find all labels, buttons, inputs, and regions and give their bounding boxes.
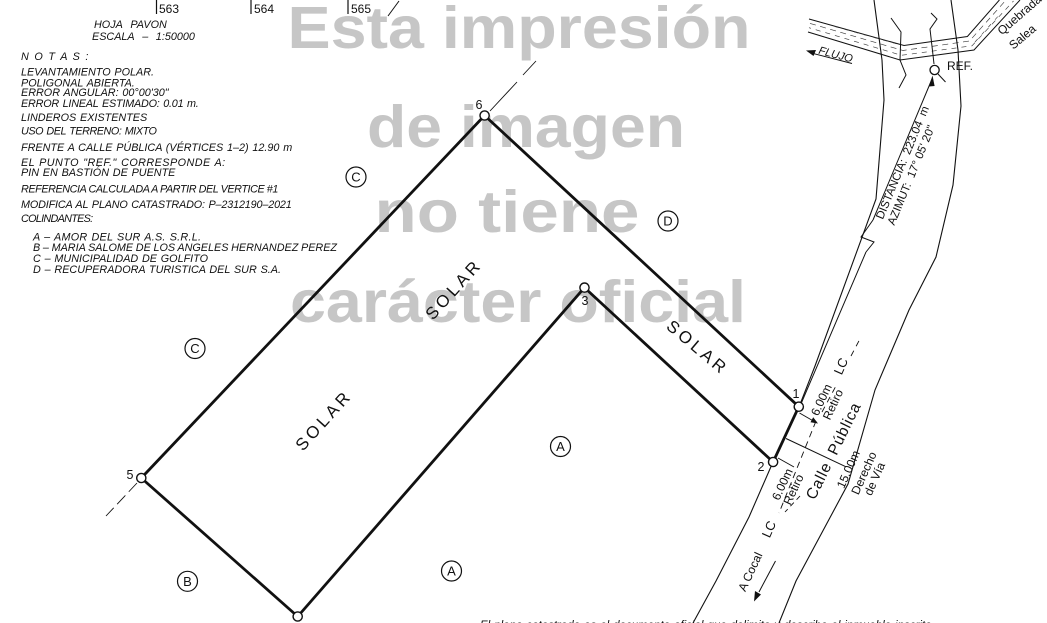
svg-text:SOLAR: SOLAR: [292, 386, 356, 455]
svg-text:MODIFICA AL PLANO CATASTRADO:: MODIFICA AL PLANO CATASTRADO: P–2312190–…: [21, 199, 292, 211]
svg-text:LC: LC: [759, 519, 779, 540]
svg-text:LINDEROS EXISTENTES: LINDEROS EXISTENTES: [21, 112, 148, 124]
svg-text:ESCALA – 1:50000: ESCALA – 1:50000: [92, 31, 195, 43]
svg-text:565: 565: [351, 2, 371, 16]
svg-text:B: B: [183, 574, 192, 589]
svg-text:REFERENCIA CALCULADA A PARTIR: REFERENCIA CALCULADA A PARTIR DEL VERTIC…: [21, 183, 278, 195]
svg-text:A Cocal: A Cocal: [735, 550, 765, 593]
svg-text:REF.: REF.: [947, 59, 973, 73]
svg-text:FLUJO: FLUJO: [817, 45, 854, 66]
svg-text:564: 564: [254, 2, 274, 16]
svg-text:de imagen: de imagen: [367, 94, 685, 160]
svg-text:PIN EN BASTIÓN DE PUENTE: PIN EN BASTIÓN DE PUENTE: [21, 166, 176, 179]
svg-text:5: 5: [127, 468, 134, 482]
svg-text:D – RECUPERADORA TURISTICA DEL: D – RECUPERADORA TURISTICA DEL SUR S.A.: [33, 264, 281, 276]
svg-text:FRENTE A CALLE PÚBLICA (VÉRTIC: FRENTE A CALLE PÚBLICA (VÉRTICES 1–2) 12…: [21, 141, 292, 154]
svg-text:USO DEL TERRENO: MIXTO: USO DEL TERRENO: MIXTO: [21, 126, 158, 138]
svg-text:C: C: [190, 341, 199, 356]
svg-text:A: A: [447, 564, 456, 579]
svg-text:2: 2: [758, 460, 765, 474]
svg-text:HOJA PAVON: HOJA PAVON: [94, 19, 167, 31]
svg-text:N O T A S :: N O T A S :: [21, 51, 89, 63]
svg-text:D: D: [663, 214, 672, 229]
svg-text:3: 3: [582, 294, 589, 308]
svg-text:C: C: [351, 170, 360, 185]
svg-text:LC: LC: [831, 356, 851, 377]
svg-text:1: 1: [793, 387, 800, 401]
svg-text:6: 6: [476, 98, 483, 112]
svg-text:ERROR LINEAL ESTIMADO: 0.01 m.: ERROR LINEAL ESTIMADO: 0.01 m.: [21, 98, 199, 110]
svg-text:A: A: [556, 439, 565, 454]
svg-text:COLINDANTES:: COLINDANTES:: [21, 213, 93, 225]
svg-text:563: 563: [159, 2, 179, 16]
